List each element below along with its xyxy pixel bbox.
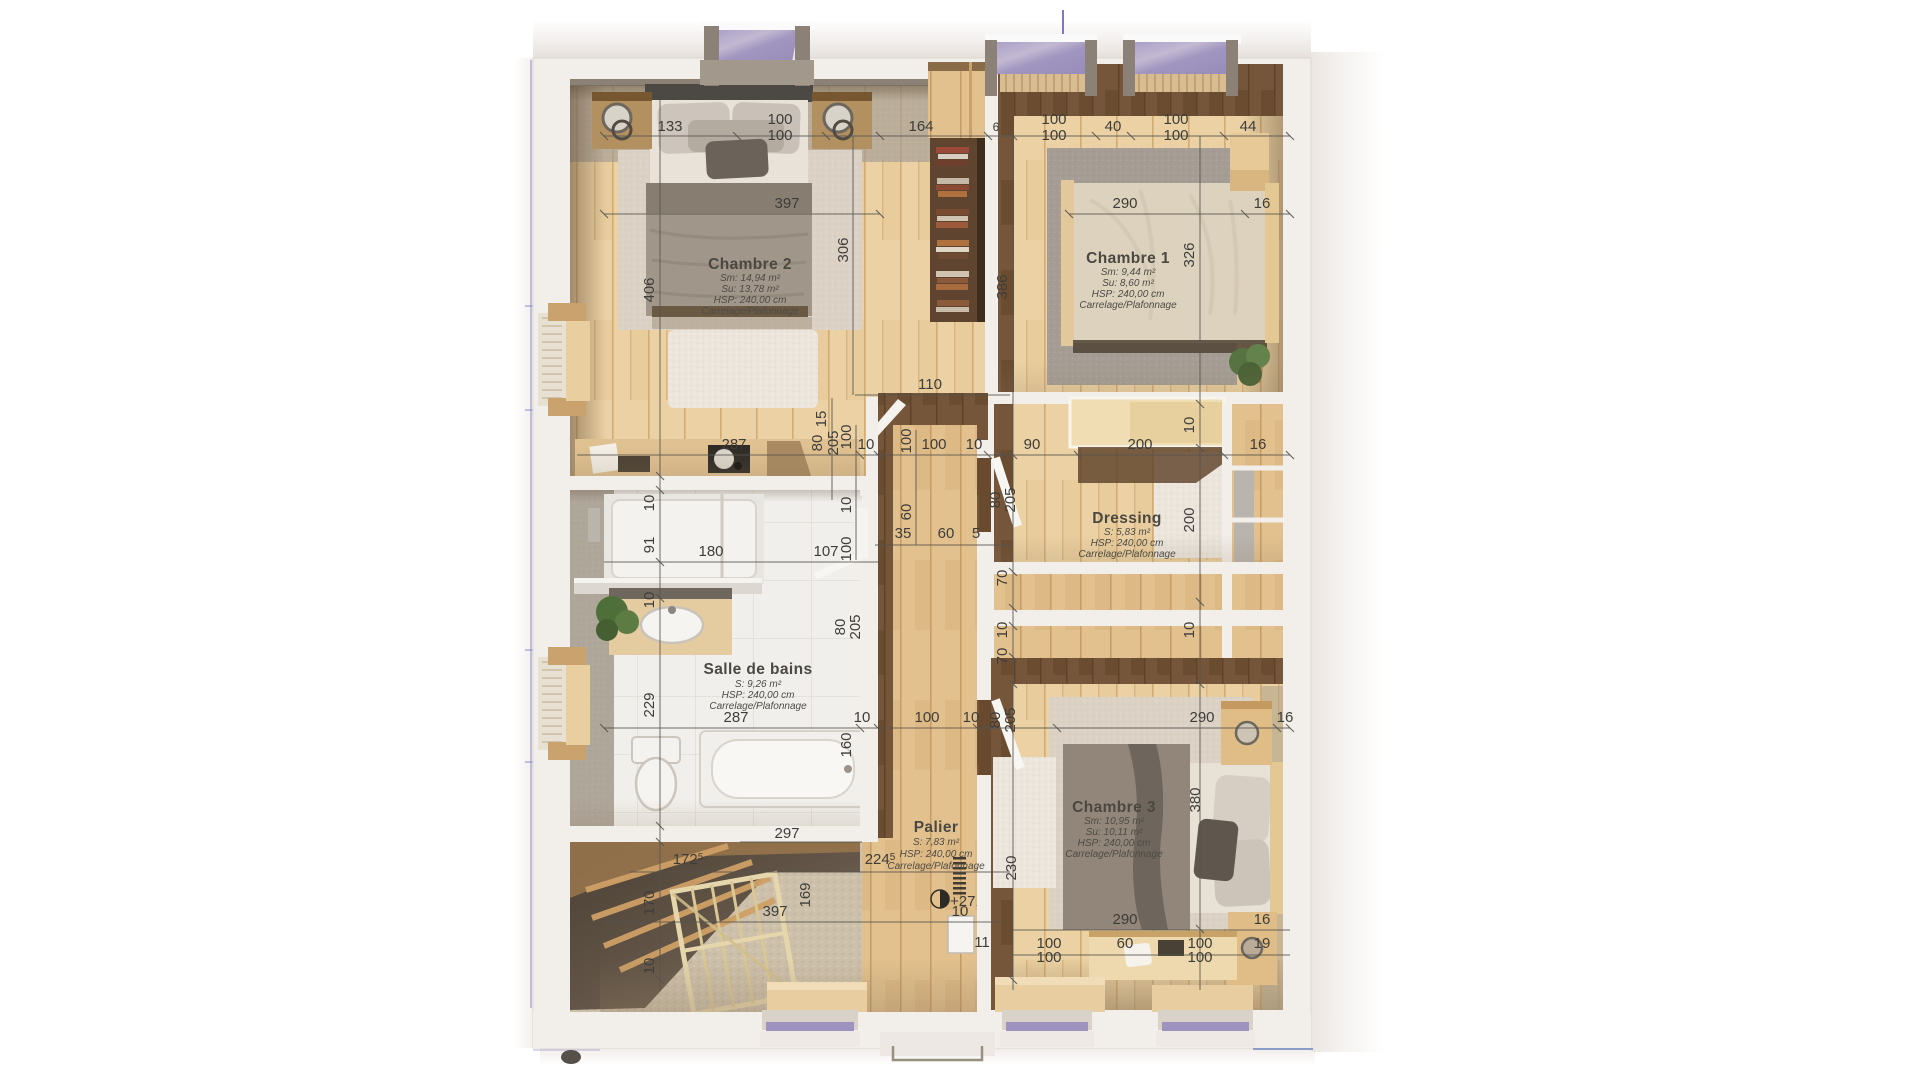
svg-text:160: 160 (838, 732, 855, 757)
svg-text:16: 16 (1250, 436, 1267, 453)
svg-text:100: 100 (921, 436, 946, 453)
svg-text:397: 397 (774, 195, 799, 212)
svg-text:80: 80 (809, 435, 826, 452)
svg-text:287: 287 (721, 436, 746, 453)
svg-text:60: 60 (1117, 935, 1134, 952)
svg-text:326: 326 (1181, 242, 1198, 267)
svg-text:S: 9,26 m²: S: 9,26 m² (735, 679, 782, 690)
svg-text:90: 90 (1024, 436, 1041, 453)
svg-text:10: 10 (1181, 417, 1198, 434)
svg-text:100: 100 (1041, 127, 1066, 144)
svg-text:406: 406 (641, 277, 658, 302)
svg-text:Su: 10,11 m²: Su: 10,11 m² (1086, 827, 1143, 838)
svg-text:16: 16 (1277, 709, 1294, 726)
svg-text:297: 297 (774, 825, 799, 842)
svg-text:10: 10 (966, 436, 983, 453)
svg-text:Sm: 14,94 m²: Sm: 14,94 m² (720, 273, 781, 284)
svg-text:Su: 8,60 m²: Su: 8,60 m² (1102, 278, 1154, 289)
svg-text:133: 133 (657, 118, 682, 135)
svg-text:386: 386 (994, 274, 1011, 299)
svg-text:40: 40 (1105, 118, 1122, 135)
svg-text:100: 100 (1187, 949, 1212, 966)
svg-text:S: 7,83 m²: S: 7,83 m² (913, 837, 960, 848)
svg-text:HSP: 240,00 cm: HSP: 240,00 cm (714, 295, 787, 306)
svg-text:100: 100 (767, 127, 792, 144)
svg-text:100: 100 (767, 111, 792, 128)
svg-text:Chambre 1: Chambre 1 (1086, 250, 1170, 267)
svg-text:110: 110 (918, 376, 942, 393)
svg-text:229: 229 (641, 692, 658, 717)
svg-text:19: 19 (1254, 935, 1271, 952)
svg-text:HSP: 240,00 cm: HSP: 240,00 cm (900, 849, 973, 860)
svg-text:397: 397 (762, 903, 787, 920)
svg-text:44: 44 (1240, 118, 1257, 135)
svg-text:10: 10 (952, 903, 969, 920)
svg-text:Carrelage/Plafonnage: Carrelage/Plafonnage (701, 306, 799, 317)
svg-text:Carrelage/Plafonnage: Carrelage/Plafonnage (1078, 549, 1176, 560)
svg-text:169: 169 (797, 882, 814, 907)
svg-text:205: 205 (847, 614, 864, 639)
svg-text:91: 91 (641, 537, 658, 554)
svg-text:Su: 13,78 m²: Su: 13,78 m² (721, 284, 779, 295)
svg-text:Chambre 3: Chambre 3 (1072, 799, 1156, 816)
svg-text:6: 6 (993, 120, 1000, 134)
svg-text:10: 10 (854, 709, 871, 726)
svg-text:10: 10 (641, 592, 658, 609)
svg-text:10: 10 (838, 497, 855, 514)
svg-text:200: 200 (1181, 507, 1198, 532)
svg-text:200: 200 (1127, 436, 1152, 453)
svg-text:11: 11 (974, 934, 990, 951)
svg-text:70: 70 (994, 570, 1011, 587)
svg-text:100: 100 (1163, 127, 1188, 144)
svg-text:Palier: Palier (914, 819, 959, 836)
svg-text:100: 100 (838, 424, 855, 449)
svg-text:HSP: 240,00 cm: HSP: 240,00 cm (1078, 838, 1151, 849)
svg-text:205: 205 (1002, 707, 1019, 732)
svg-text:306: 306 (835, 237, 852, 262)
svg-text:60: 60 (898, 504, 915, 521)
svg-text:170: 170 (641, 890, 658, 915)
svg-text:Carrelage/Plafonnage: Carrelage/Plafonnage (1079, 300, 1177, 311)
svg-text:HSP: 240,00 cm: HSP: 240,00 cm (1092, 289, 1165, 300)
svg-text:10: 10 (641, 958, 658, 975)
svg-text:Chambre 2: Chambre 2 (708, 256, 792, 273)
svg-text:107: 107 (813, 543, 838, 560)
svg-text:16: 16 (1254, 195, 1271, 212)
svg-text:10: 10 (1181, 622, 1198, 639)
svg-text:180: 180 (698, 543, 723, 560)
svg-text:Sm: 10,95 m²: Sm: 10,95 m² (1084, 816, 1145, 827)
svg-text:164: 164 (908, 118, 933, 135)
svg-text:290: 290 (1112, 911, 1137, 928)
svg-text:Carrelage/Plafonnage: Carrelage/Plafonnage (1065, 849, 1163, 860)
svg-text:290: 290 (1189, 709, 1214, 726)
svg-text:HSP: 240,00 cm: HSP: 240,00 cm (1091, 538, 1164, 549)
svg-text:10: 10 (994, 622, 1011, 639)
svg-text:100: 100 (898, 428, 915, 453)
svg-text:Dressing: Dressing (1092, 510, 1162, 527)
svg-text:Carrelage/Plafonnage: Carrelage/Plafonnage (887, 861, 985, 872)
svg-text:230: 230 (1003, 855, 1020, 880)
svg-text:100: 100 (838, 536, 855, 561)
svg-text:10: 10 (641, 495, 658, 512)
svg-text:205: 205 (1002, 487, 1019, 512)
svg-text:Salle de bains: Salle de bains (704, 661, 813, 678)
svg-text:35: 35 (895, 525, 912, 542)
svg-text:5: 5 (972, 525, 980, 542)
svg-text:100: 100 (1036, 949, 1061, 966)
svg-text:100: 100 (1163, 111, 1188, 128)
svg-text:Carrelage/Plafonnage: Carrelage/Plafonnage (709, 701, 807, 712)
svg-text:Sm: 9,44 m²: Sm: 9,44 m² (1101, 267, 1156, 278)
svg-text:290: 290 (1112, 195, 1137, 212)
svg-text:HSP: 240,00 cm: HSP: 240,00 cm (722, 690, 795, 701)
svg-text:380: 380 (1187, 787, 1204, 812)
svg-text:15: 15 (813, 411, 830, 428)
svg-text:S: 5,83 m²: S: 5,83 m² (1104, 527, 1151, 538)
svg-text:100: 100 (914, 709, 939, 726)
svg-text:10: 10 (858, 436, 875, 453)
svg-text:60: 60 (938, 525, 955, 542)
svg-text:10: 10 (963, 709, 980, 726)
svg-text:100: 100 (1041, 111, 1066, 128)
svg-text:16: 16 (1254, 911, 1271, 928)
svg-text:70: 70 (994, 648, 1011, 665)
